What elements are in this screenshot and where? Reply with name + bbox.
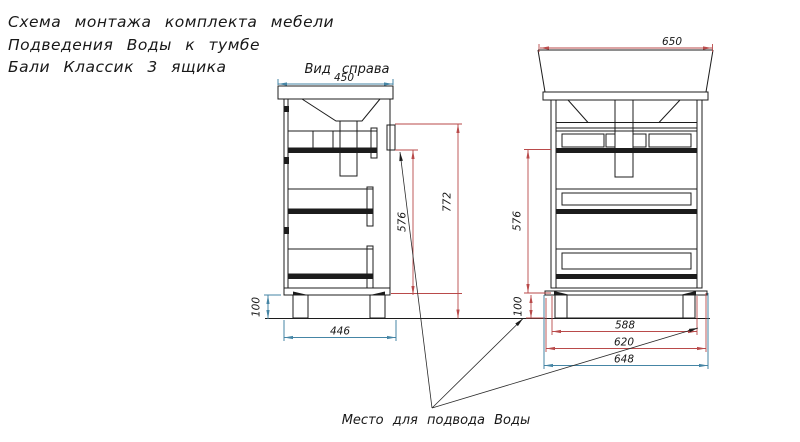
dim-left-total-height-value: 772	[442, 192, 454, 212]
dim-left-supply-height-value: 576	[397, 212, 409, 232]
front-view	[538, 50, 713, 318]
side-drawer-2	[288, 187, 373, 226]
dim-left-top-width-value: 450	[334, 72, 354, 84]
assembly-drawing-page: Схема монтажа комплекта мебели Подведени…	[0, 0, 800, 442]
front-toe-panel	[567, 295, 683, 318]
side-drawer-3	[288, 246, 373, 288]
front-drawer-3	[556, 249, 697, 279]
water-note-leaders	[399, 152, 698, 408]
front-drain-pipe	[615, 100, 633, 177]
dim-left-base-width: 446	[284, 320, 396, 341]
dim-right-feet-span-value: 588	[615, 320, 635, 332]
side-sink-bowl	[302, 99, 380, 121]
dim-right-supply-height: 576	[512, 150, 552, 294]
technical-drawing: Схема монтажа комплекта мебели Подведени…	[0, 0, 800, 442]
side-countertop	[278, 86, 393, 99]
dim-right-total-width-value: 648	[614, 354, 634, 366]
dim-left-leg-height-value: 100	[251, 297, 263, 317]
side-drawer-1	[288, 128, 377, 158]
front-top-rail	[556, 123, 697, 129]
dim-right-body-width-value: 620	[614, 337, 634, 349]
side-water-outlet	[387, 125, 395, 150]
water-supply-note: Место для подвода Воды	[342, 413, 531, 428]
dim-right-leg-height-value: 100	[513, 296, 525, 316]
front-sink-bowl	[568, 100, 680, 123]
dim-left-base-width-value: 446	[330, 326, 350, 338]
front-countertop	[543, 92, 708, 100]
drawing-title-line-1: Схема монтажа комплекта мебели	[8, 13, 334, 31]
dim-left-supply-height: 576	[391, 150, 462, 295]
title-block: Схема монтажа комплекта мебели Подведени…	[8, 13, 334, 76]
front-drawer-1	[556, 131, 697, 153]
drawing-title-line-2: Подведения Воды к тумбе	[8, 36, 260, 54]
dim-right-supply-height-value: 576	[512, 211, 524, 231]
dim-right-feet-span: 588	[552, 296, 697, 335]
front-drawer-2	[556, 189, 697, 214]
front-sink-top	[538, 50, 713, 92]
drawing-title-line-3: Бали Классик 3 ящика	[8, 58, 227, 76]
side-view: Вид справа	[278, 62, 395, 318]
dim-left-leg-height: 100	[251, 295, 282, 319]
dim-right-top-width-value: 650	[662, 36, 682, 48]
dim-right-leg-height: 100	[513, 295, 546, 318]
side-body	[284, 99, 390, 288]
